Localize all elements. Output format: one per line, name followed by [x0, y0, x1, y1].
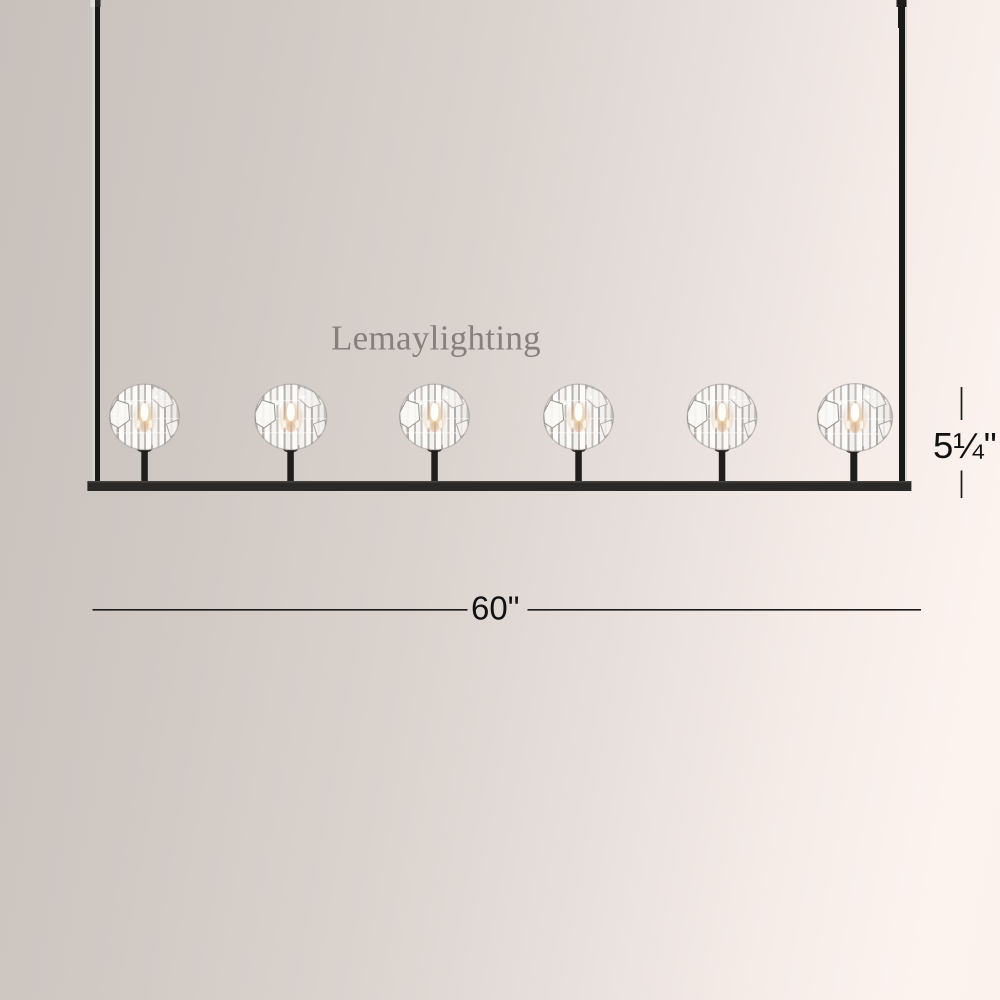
svg-text:Lemaylighting: Lemaylighting: [331, 319, 541, 358]
svg-text:60": 60": [471, 590, 519, 627]
svg-text:5¼": 5¼": [933, 425, 997, 466]
